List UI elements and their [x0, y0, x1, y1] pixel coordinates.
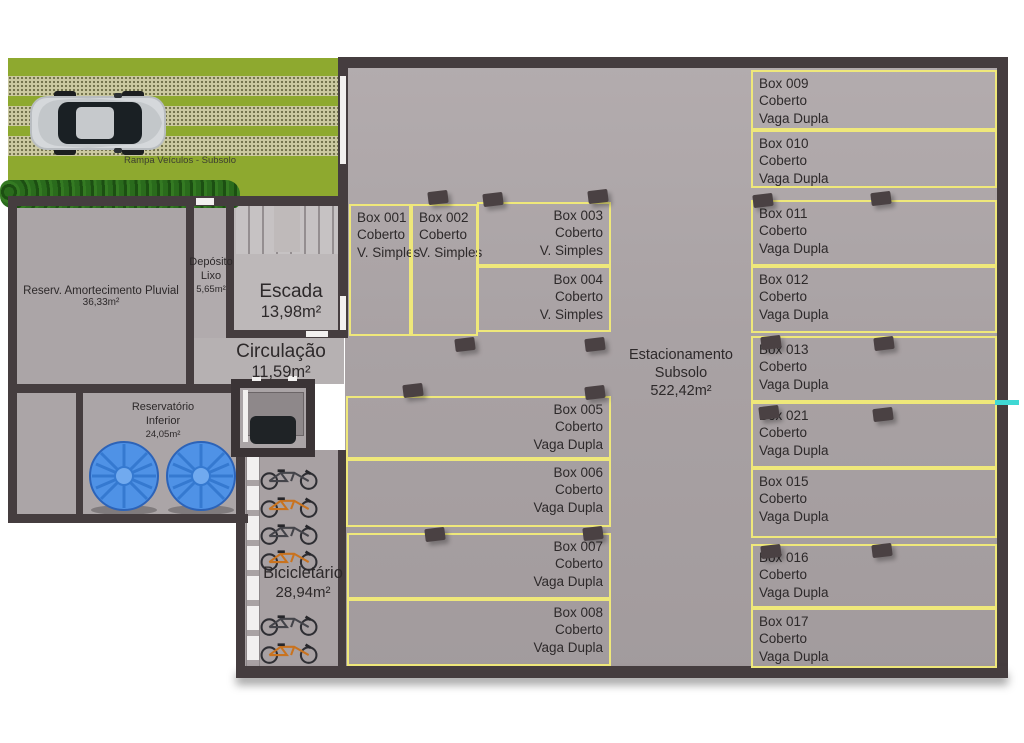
column-pillar [871, 543, 892, 558]
room-name: Lixo [189, 270, 232, 284]
column-pillar [482, 192, 503, 207]
box-id: Box 004 [485, 271, 603, 288]
box-type: Vaga Dupla [759, 508, 989, 525]
column-pillar [873, 336, 894, 351]
room-label-bicicletario: Bicicletário 28,94m² [263, 564, 343, 602]
room-label-reserv-pluvial: Reserv. Amortecimento Pluvial 36,33m² [23, 285, 179, 308]
teal-marker [995, 400, 1019, 405]
room-name: Estacionamento [629, 346, 733, 364]
box-cover: Coberto [357, 226, 403, 243]
parking-box-008: Box 008 Coberto Vaga Dupla [347, 599, 611, 666]
box-type: V. Simples [419, 244, 470, 261]
box-cover: Coberto [759, 152, 989, 169]
box-type: V. Simples [485, 306, 603, 323]
room-name: Reserv. Amortecimento Pluvial [23, 285, 179, 297]
bicycle-icon [260, 521, 318, 547]
room-name: Reservatório [132, 401, 194, 415]
box-cover: Coberto [419, 226, 470, 243]
box-type: Vaga Dupla [759, 240, 989, 257]
ramp-label: Rampa Veículos - Subsolo [124, 155, 236, 166]
box-id: Box 006 [354, 464, 603, 481]
escada-right-door-gap [340, 296, 346, 330]
parking-box-015: Box 015 Coberto Vaga Dupla [751, 468, 997, 538]
bicycle-icon [260, 612, 318, 638]
column-pillar [760, 335, 781, 350]
column-pillar [582, 526, 603, 541]
reservatorio-bottom-wall [8, 514, 248, 523]
box-id: Box 012 [759, 271, 989, 288]
parking-box-010: Box 010 Coberto Vaga Dupla [751, 130, 997, 188]
parking-box-011: Box 011 Coberto Vaga Dupla [751, 200, 997, 266]
water-tank [86, 438, 162, 516]
box-type: Vaga Dupla [759, 442, 989, 459]
elevator-platform-object [250, 416, 296, 444]
parking-box-001: Box 001 Coberto V. Simples [349, 204, 411, 336]
box-id: Box 003 [485, 207, 603, 224]
box-cover: Coberto [355, 555, 603, 572]
column-pillar [752, 193, 773, 208]
box-cover: Coberto [485, 224, 603, 241]
room-area: 11,59m² [236, 363, 326, 382]
column-pillar [584, 337, 605, 352]
box-cover: Coberto [759, 490, 989, 507]
box-cover: Coberto [355, 621, 603, 638]
column-pillar [427, 190, 448, 205]
room-label-escada: Escada 13,98m² [259, 281, 322, 322]
box-id: Box 001 [357, 209, 403, 226]
room-name: Subsolo [629, 364, 733, 382]
room-name: Inferior [132, 415, 194, 429]
box-id: Box 008 [355, 604, 603, 621]
ramp-door-gap [340, 76, 346, 164]
column-pillar [454, 337, 475, 352]
room-area: 13,98m² [259, 303, 322, 322]
box-cover: Coberto [759, 288, 989, 305]
box-cover: Coberto [759, 566, 989, 583]
box-id: Box 007 [355, 538, 603, 555]
room-label-circulacao: Circulação 11,59m² [236, 341, 326, 382]
box-cover: Coberto [354, 418, 603, 435]
box-cover: Coberto [759, 92, 989, 109]
box-type: Vaga Dupla [355, 639, 603, 656]
garage-right-wall [997, 57, 1008, 678]
escada-bottom-wall [226, 330, 348, 338]
reservatorio-divider-wall [76, 390, 83, 518]
column-pillar [872, 407, 893, 422]
room-area: 5,65m² [189, 284, 232, 296]
reserv-mid-wall [8, 384, 245, 393]
box-type: Vaga Dupla [355, 573, 603, 590]
room-area: 522,42m² [629, 382, 733, 400]
room-area: 24,05m² [132, 429, 194, 441]
box-type: V. Simples [485, 242, 603, 259]
box-id: Box 015 [759, 473, 989, 490]
room-area: 36,33m² [23, 297, 179, 308]
box-type: Vaga Dupla [354, 499, 603, 516]
box-cover: Coberto [759, 630, 989, 647]
room-label-estacionamento: Estacionamento Subsolo 522,42m² [629, 346, 733, 400]
column-pillar [870, 191, 891, 206]
room-label-reservatorio-inferior: Reservatório Inferior 24,05m² [132, 401, 194, 440]
box-id: Box 011 [759, 205, 989, 222]
room-name: Bicicletário [263, 564, 343, 584]
box-id: Box 010 [759, 135, 989, 152]
parking-box-004: Box 004 Coberto V. Simples [477, 266, 611, 332]
elevator-door-rail [243, 390, 248, 442]
parking-box-002: Box 002 Coberto V. Simples [411, 204, 478, 336]
box-type: Vaga Dupla [354, 436, 603, 453]
column-pillar [760, 544, 781, 559]
box-cover: Coberto [759, 222, 989, 239]
box-cover: Coberto [759, 424, 989, 441]
box-cover: Coberto [759, 358, 989, 375]
parking-box-012: Box 012 Coberto Vaga Dupla [751, 266, 997, 333]
staircase-landing [274, 206, 300, 252]
floor-plan-basement: { "ramp": { "label": "Rampa Veículos - S… [0, 0, 1024, 743]
room-label-deposito-lixo: Depósito Lixo 5,65m² [189, 256, 232, 295]
water-tank [163, 438, 239, 516]
column-pillar [402, 383, 423, 398]
parking-box-005: Box 005 Coberto Vaga Dupla [346, 396, 611, 459]
parking-box-006: Box 006 Coberto Vaga Dupla [346, 459, 611, 527]
room-area: 28,94m² [263, 584, 343, 602]
column-pillar [758, 405, 779, 420]
escada-door-gap [306, 331, 328, 337]
box-type: Vaga Dupla [759, 376, 989, 393]
box-type: Vaga Dupla [759, 170, 989, 187]
box-type: V. Simples [357, 244, 403, 261]
box-id: Box 005 [354, 401, 603, 418]
room-name: Escada [259, 281, 322, 303]
room-name: Circulação [236, 341, 326, 363]
bike-rack-strip [246, 455, 260, 667]
car-top-view [28, 90, 168, 156]
parking-box-017: Box 017 Coberto Vaga Dupla [751, 608, 997, 668]
bicycle-icon [260, 494, 318, 520]
rooms-top-wall [8, 196, 348, 206]
box-type: Vaga Dupla [759, 584, 989, 601]
column-pillar [587, 189, 608, 204]
box-cover: Coberto [485, 288, 603, 305]
room-name: Depósito [189, 256, 232, 270]
box-id: Box 002 [419, 209, 470, 226]
box-type: Vaga Dupla [759, 648, 989, 665]
parking-box-003: Box 003 Coberto V. Simples [477, 202, 611, 266]
bicycle-icon [260, 466, 318, 492]
bicicletario-right-wall [338, 450, 346, 672]
box-type: Vaga Dupla [759, 306, 989, 323]
parking-box-007: Box 007 Coberto Vaga Dupla [347, 533, 611, 599]
parking-box-009: Box 009 Coberto Vaga Dupla [751, 70, 997, 130]
bicycle-icon [260, 640, 318, 666]
garage-top-wall [338, 57, 1008, 68]
box-id: Box 009 [759, 75, 989, 92]
box-cover: Coberto [354, 481, 603, 498]
deposito-door-gap [196, 198, 214, 205]
box-id: Box 017 [759, 613, 989, 630]
box-type: Vaga Dupla [759, 110, 989, 127]
column-pillar [584, 385, 605, 400]
column-pillar [424, 527, 445, 542]
rooms-left-wall [8, 196, 17, 523]
